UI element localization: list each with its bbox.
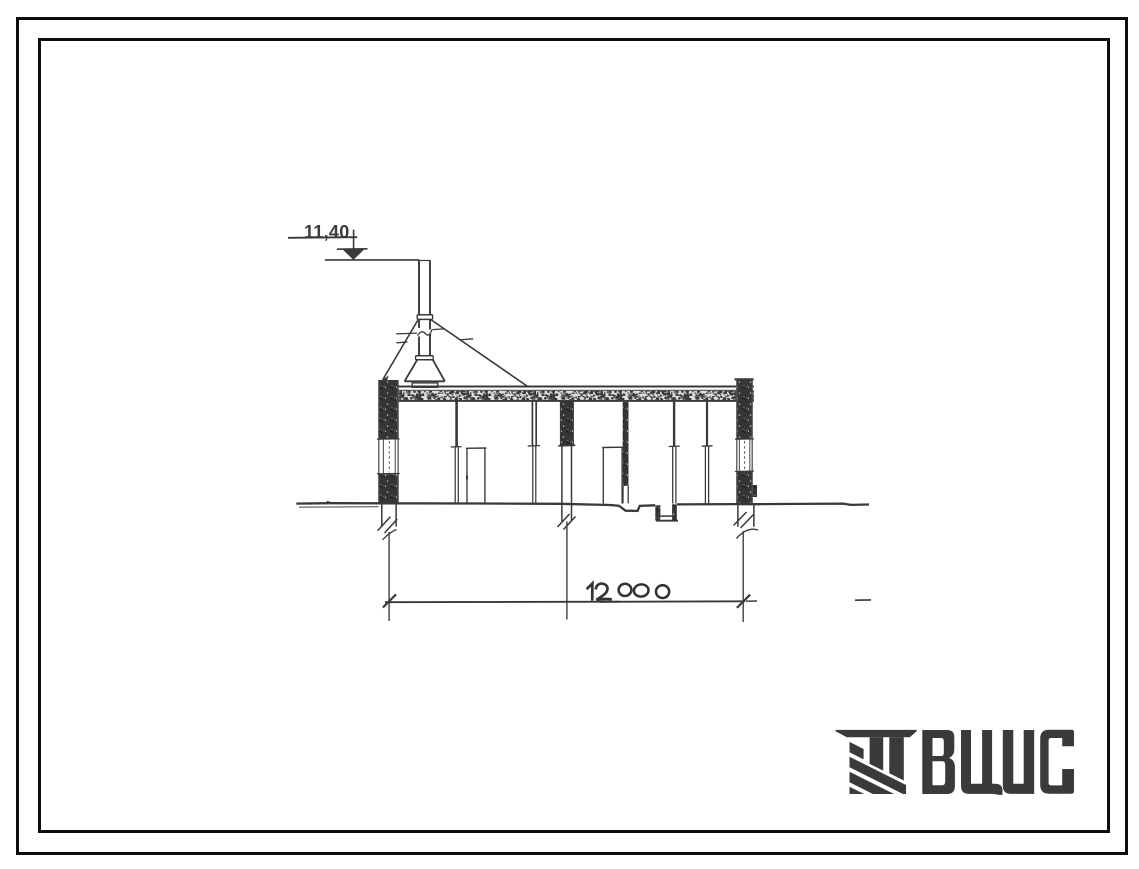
svg-text:11,40: 11,40 (304, 222, 350, 242)
